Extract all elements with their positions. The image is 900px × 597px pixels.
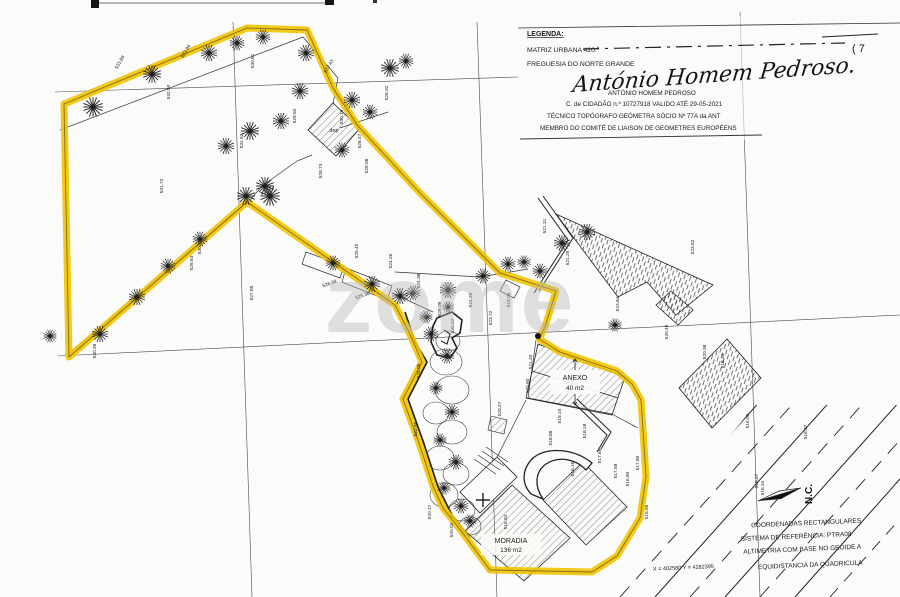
spot-elevation: 533.69 <box>114 54 127 70</box>
spot-elevation: 524.05 <box>416 363 422 378</box>
spot-elevation: 529.50 <box>292 108 298 123</box>
spot-elevation: 529.64 <box>189 255 195 270</box>
spot-elevation: 531.52 <box>239 133 245 148</box>
spot-elevation: 520.17 <box>427 504 433 519</box>
spot-elevation: 516.16 <box>570 461 576 476</box>
north-arrow: N.C. <box>758 484 815 504</box>
spot-elevation: 529.08 <box>364 158 370 173</box>
map-notes: COORDENADAS RECTANGULARES SISTEMA DE REF… <box>651 518 864 576</box>
north-label: N.C. <box>804 484 815 504</box>
moradia-label: MORADIA <box>495 538 528 545</box>
tree-icon <box>399 54 413 68</box>
spot-elevation: 531.72 <box>159 178 165 193</box>
road-lines <box>585 398 900 597</box>
spot-elevation: 518.27 <box>754 473 760 488</box>
spot-elevation: 530.61 <box>250 53 256 68</box>
spot-elevation: 516.03 <box>745 413 751 428</box>
spot-elevation: 519.15 <box>557 408 563 423</box>
spot-elevation: 523.62 <box>690 239 696 254</box>
spot-elevation: 518.18 <box>582 423 588 438</box>
tree-icon <box>363 105 377 119</box>
spot-elevation: 518.07 <box>803 424 809 439</box>
tree-icon <box>273 113 289 129</box>
spot-elevation: 520.90 <box>525 378 531 393</box>
surveyor-credential-3: MEMBRO DO COMITÉ DE LIAISON DE GEOMETRES… <box>540 123 737 132</box>
anexo-label: ANEXO <box>563 375 588 382</box>
spot-elevation: 520.27 <box>497 401 503 416</box>
watermark: zome <box>325 247 576 353</box>
spot-elevation: 518.88 <box>548 430 554 445</box>
survey-plan-svg: 532.90531.52531.72533.69533.84530.61530.… <box>0 0 900 597</box>
note-equidistancia: EQUIDISTANCIA DA QUADRICULA <box>758 560 863 572</box>
tree-icon <box>83 97 102 116</box>
surveyor-name: ANTÓNIO HOMEM PEDROSO <box>608 88 696 97</box>
spot-elevation: 522.55 <box>413 421 419 436</box>
legend-title: LEGENDA: <box>527 31 564 38</box>
spot-elevation: 527.89 <box>249 285 255 300</box>
moradia-area-label: 136 m2 <box>500 547 522 554</box>
legend: LEGENDA: MATRIZ URBANA 420.ª ( 7 FREGUES… <box>518 16 900 140</box>
note-sistema: SISTEMA DE REFERÊNCIA: PTRA08 <box>740 529 852 543</box>
note-coordenadas: COORDENADAS RECTANGULARES <box>751 518 862 530</box>
legend-matriz: MATRIZ URBANA 420.ª <box>527 47 600 54</box>
spot-elevation: 517.65 <box>597 448 603 463</box>
spot-elevation: 515.56 <box>644 504 650 519</box>
tree-icon <box>449 455 463 469</box>
tree-icon <box>260 186 279 205</box>
tree-canopy <box>423 402 449 424</box>
note-altimetria: ALTIMETRIA COM BASE NO GEOIDE A <box>743 544 862 556</box>
spot-elevation: 523.84 <box>615 296 621 311</box>
spot-elevation: 521.20 <box>528 354 534 369</box>
scanned-survey-plan: 532.90531.52531.72533.69533.84530.61530.… <box>0 0 900 597</box>
spot-elevation: 528.47 <box>357 133 363 148</box>
spot-elevation: 520.38 <box>702 344 708 359</box>
spot-elevation: 517.80 <box>635 455 641 470</box>
tree-icon <box>381 59 399 77</box>
grid-origin-coordinates: X = 402580 Y = 4282395 <box>653 564 714 573</box>
spot-elevation: 521.31 <box>542 218 548 233</box>
tree-icon <box>218 138 234 154</box>
tree-canopy <box>435 376 469 404</box>
surveyor-credential-2: TÉCNICO TOPÓGRAFO GEÓMETRA SÓCIO Nº 77A … <box>547 111 721 120</box>
tree-icon <box>430 382 443 395</box>
spot-elevation: 516.80 <box>625 471 631 486</box>
spot-elevation: 518.34 <box>720 353 726 368</box>
spot-elevation: 528.02 <box>384 85 390 100</box>
anexo-area-label: 40 m2 <box>566 385 584 392</box>
tree-icon <box>44 330 57 343</box>
spot-elevation: 516.84 <box>503 514 509 529</box>
tree-icon <box>609 319 622 332</box>
tree-icon <box>434 434 447 447</box>
tree-icon <box>292 83 308 99</box>
spot-elevation: 516.34 <box>760 480 766 495</box>
dep-label: dep <box>329 128 338 134</box>
surveyor-credential-1: C. de CIDADÃO n.º 10727918 VALIDO ATÉ 29… <box>566 99 723 108</box>
spot-elevation: 528.73 <box>318 163 324 178</box>
spot-elevation: 530.39 <box>92 343 98 358</box>
scan-edge-artifacts <box>91 0 377 8</box>
spot-elevation: 517.58 <box>613 463 619 478</box>
spot-elevation: 530.72 <box>197 239 203 254</box>
spot-elevation: 532.90 <box>166 84 172 99</box>
legend-freguesia: FREGUESIA DO NORTE GRANDE <box>527 61 635 68</box>
spot-elevation: 520.02 <box>449 522 455 537</box>
spot-elevation: 530.19 <box>339 109 345 124</box>
spot-elevation: 520.48 <box>664 324 670 339</box>
small-hatched-square <box>488 416 507 434</box>
